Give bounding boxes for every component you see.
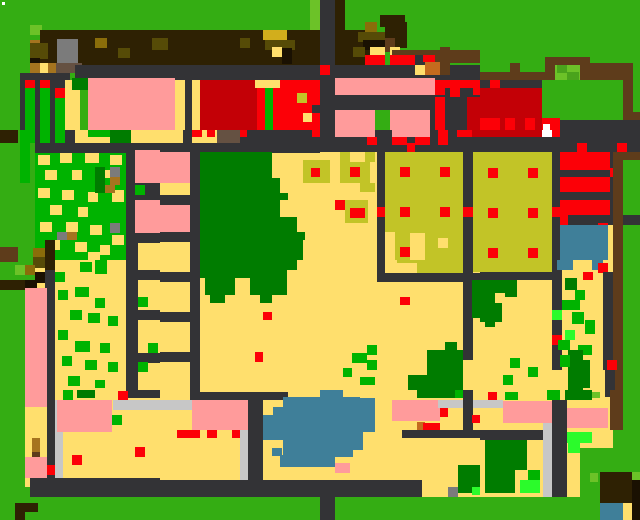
tree-green-tile [565,390,592,400]
room-pink-tile [25,288,47,407]
item-red-tile [311,168,320,177]
wall-tile [312,105,320,113]
gold-olive-tile [365,22,377,32]
stone-grey-tile [57,39,78,65]
roof-dark-tile [335,0,345,32]
water-tile [263,415,283,440]
lush-green-tile [552,310,562,320]
stone-path-tile [113,400,192,410]
item-red-tile [480,118,500,130]
room-pink-tile [192,400,248,430]
item-red-tile [528,208,538,218]
wood-brown-tile [590,63,623,80]
bush-green-tile [148,343,158,353]
item-red-tile [232,430,240,438]
wall-tile [377,273,480,282]
sand-floor-tile [112,235,124,245]
item-red-tile [450,88,460,97]
wall-tile [138,270,160,280]
sand-floor-tile [75,242,87,252]
item-red-tile [552,130,560,137]
dark-red-tile [200,80,257,130]
item-red-tile [560,152,610,170]
sand-floor-tile [66,222,78,232]
water-tile [557,260,573,270]
bush-green-tile [62,356,72,366]
item-red-tile [528,168,538,178]
tree-green-tile [200,240,303,260]
roof-dark-tile [0,130,18,143]
crop-field-tile [297,93,307,103]
dirt-tan-tile [110,177,120,185]
dark-red-tile [480,130,542,137]
wall-tile [160,312,190,322]
white-spot-tile [2,2,5,5]
bush-green-tile [80,262,92,272]
wall-tile [185,80,192,130]
dark-red-tile [480,88,542,118]
wall-tile [603,272,613,370]
bush-green-tile [367,345,377,355]
water-tile [352,398,375,432]
bush-green-tile [75,287,89,297]
item-red-tile [240,130,247,137]
roof-dark-tile [600,472,632,503]
bush-green-tile [58,330,68,340]
bush-green-tile [108,316,118,326]
room-pink-tile [25,457,47,478]
sand-floor-tile [255,80,280,88]
dirt-tan-tile [32,438,40,452]
stone-grey-tile [57,232,67,240]
item-red-tile [488,168,498,178]
tree-green-tile [417,390,455,398]
tree-green-tile [250,278,275,295]
item-red-tile [560,177,610,192]
wood-brown-tile [610,390,623,430]
stone-path-tile [543,423,552,497]
trunk-black-tile [282,48,292,64]
tree-green-tile [472,280,480,318]
wall-tile [192,392,288,400]
stone-grey-tile [448,487,458,497]
tree-green-tile [485,440,527,470]
room-pink-tile [392,400,440,421]
wood-brown-tile [613,152,623,390]
lush-green-tile [568,443,580,453]
lush-green-tile [567,432,592,443]
dark-red-tile [472,130,480,137]
item-red-tile [560,215,568,225]
bush-green-tile [352,353,367,363]
wall-tile [160,232,190,242]
bush-green-tile [100,343,110,353]
tree-green-tile [485,318,495,327]
wood-brown-tile [545,65,555,80]
item-red-tile [40,80,50,88]
item-red-tile [472,415,480,423]
wood-brown-tile [0,247,18,262]
item-red-tile [320,65,330,75]
lush-green-tile [520,480,540,493]
bush-green-tile [63,390,73,400]
sand-floor-tile [623,503,632,520]
wall-tile [480,430,543,440]
roof-dark-tile [0,280,25,290]
item-red-tile [560,200,610,215]
sand-floor-tile [90,225,102,235]
item-red-tile [118,391,128,400]
item-red-tile [440,408,448,417]
sand-floor-tile [88,252,100,260]
bush-green-tile [55,130,65,143]
tree-green-tile [200,152,272,178]
roof-dark-tile [15,512,25,520]
tree-green-tile [200,270,287,278]
tree-green-tile [77,390,95,398]
wall-tile [463,390,473,400]
roof-dark-tile [45,240,55,270]
tree-green-tile [95,167,105,193]
bush-green-tile [88,313,100,323]
gold-olive-tile [95,38,107,48]
item-red-tile [367,137,377,145]
item-red-tile [423,55,435,62]
dirt-tan-tile [105,185,115,193]
room-pink-tile [567,408,608,428]
item-red-tile [407,143,415,152]
sand-floor-tile [131,130,160,143]
light-grass-tile [592,392,600,398]
wall-tile [190,150,200,400]
sand-floor-tile [88,192,98,202]
water-tile [283,410,353,457]
sand-floor-tile [303,113,312,122]
item-red-tile [457,130,472,137]
wall-tile [160,480,422,497]
item-red-tile [255,352,263,362]
wall-tile [30,478,160,497]
room-pink-tile [335,463,350,473]
crop-field-tile [340,152,350,162]
item-red-tile [263,312,272,320]
bush-green-tile [75,341,90,352]
tree-green-tile [427,350,463,390]
wood-brown-tile [580,65,590,80]
tree-green-tile [565,278,577,290]
bush-green-tile [503,375,513,385]
bush-green-tile [505,392,518,400]
item-red-tile [488,248,498,258]
wall-tile [240,130,320,143]
light-grass-tile [632,472,640,480]
wall-tile [480,272,557,280]
sand-floor-tile [175,80,185,130]
sand-floor-tile [60,153,72,163]
tree-green-tile [200,178,280,193]
wall-tile [135,233,160,243]
room-pink-tile [335,110,375,130]
item-red-tile [400,297,410,305]
wall-tile [138,310,160,320]
sand-floor-tile [72,170,82,180]
room-pink-tile [160,205,190,232]
room-pink-tile [503,401,552,423]
wall-tile [552,400,567,497]
tree-green-tile [273,278,287,295]
light-grass-tile [590,473,598,482]
item-red-tile [135,447,145,457]
item-red-tile [192,130,202,137]
bush-green-tile [560,355,570,367]
item-red-tile [435,97,445,130]
water-tile [560,225,608,260]
sand-floor-tile [85,153,99,163]
bush-green-tile [585,320,595,334]
bush-green-tile [528,470,540,480]
room-pink-tile [135,200,160,233]
item-red-tile [528,248,538,258]
room-pink-tile [392,130,430,137]
water-tile [600,503,623,520]
item-red-tile [415,137,430,145]
sand-floor-tile [45,170,57,180]
item-red-tile [440,167,450,177]
sand-floor-tile [385,260,397,273]
lush-green-tile [472,487,480,495]
item-red-tile [72,455,82,465]
sand-floor-tile [38,155,50,165]
stone-grey-tile [110,223,120,233]
sand-floor-tile [573,260,592,270]
wall-tile [463,150,473,360]
wall-tile [128,390,160,398]
wall-tile [160,352,190,362]
sand-floor-tile [495,293,505,303]
sand-floor-tile [110,155,122,165]
item-red-tile [55,88,65,98]
bush-green-tile [95,260,107,274]
room-pink-tile [57,400,112,432]
wall-tile [160,272,190,282]
game-map-viewport[interactable] [0,0,640,520]
sand-floor-tile [415,65,425,75]
bush-green-tile [455,390,463,398]
bush-green-tile [20,130,30,183]
tree-green-tile [110,130,131,143]
item-red-tile [365,55,385,65]
dirt-tan-tile [30,63,40,73]
item-red-tile [607,360,617,370]
moss-olive-tile [240,38,250,48]
tree-green-tile [72,78,88,90]
item-red-tile [488,208,498,218]
wall-tile [320,480,335,520]
sand-floor-tile [438,238,448,248]
item-red-tile [488,392,497,400]
crop-field-tile [360,183,375,192]
item-red-tile [505,118,515,130]
bush-green-tile [95,298,105,308]
wood-brown-tile [440,47,450,75]
item-red-tile [438,130,448,145]
dirt-tan-tile [48,63,56,73]
water-tile [272,448,282,456]
gold-stock-tile [263,30,287,40]
sand-floor-tile [38,188,50,198]
moss-olive-tile [353,47,365,57]
item-red-tile [177,430,200,438]
sand-floor-tile [62,190,74,200]
wood-brown-tile [480,72,545,80]
bush-green-tile [58,290,68,300]
bush-green-tile [108,362,118,372]
moss-olive-tile [30,43,48,59]
bush-green-tile [528,367,538,377]
tree-green-tile [200,232,305,240]
sand-floor-tile [192,80,200,130]
stone-grey-tile [110,167,120,177]
item-red-tile [47,465,55,475]
item-red-tile [25,80,35,88]
bush-green-tile [112,415,122,425]
bush-green-tile [343,368,352,377]
mid-grass-tile [567,72,579,80]
crop-field-tile [365,152,375,162]
bush-green-tile [55,272,65,282]
bush-green-tile [547,390,560,400]
water-tile [273,407,283,417]
room-pink-tile [335,78,435,95]
tree-green-tile [485,470,515,493]
item-red-tile [335,200,345,210]
water-tile [345,430,363,450]
item-red-tile [350,167,360,177]
bush-green-tile [572,312,584,324]
bush-green-tile [88,130,110,137]
sand-floor-tile [385,232,395,260]
crop-field-tile [320,160,330,183]
item-red-tile [400,167,410,177]
room-pink-tile [160,152,190,183]
gold-olive-tile [25,265,35,275]
tree-green-tile [580,360,590,388]
item-red-tile [525,118,535,130]
item-red-tile [400,247,410,257]
bush-green-tile [360,377,375,385]
light-grass-tile [310,0,320,31]
bush-green-tile [95,380,105,388]
tree-green-tile [200,208,280,217]
taupe-crate-tile [217,130,240,143]
tree-green-tile [205,278,235,295]
roof-dark-tile [15,503,38,512]
crop-field-tile [473,152,552,272]
room-pink-tile [135,150,160,183]
item-red-tile [312,130,320,137]
bush-green-tile [510,358,520,368]
white-spot-tile [542,130,552,137]
tree-green-tile [210,295,225,303]
bush-green-tile [135,185,145,195]
wood-brown-tile [627,112,640,120]
wall-tile [160,195,190,205]
bush-green-tile [85,360,97,370]
room-pink-tile [88,78,175,130]
item-red-tile [583,272,593,280]
tree-green-tile [200,217,297,232]
item-red-tile [257,88,265,130]
tree-green-tile [200,193,288,200]
tree-green-tile [200,260,297,270]
sand-floor-tile [50,205,62,215]
item-red-tile [207,130,215,137]
sand-floor-tile [272,47,282,57]
item-red-tile [440,207,450,217]
mid-grass-tile [557,65,567,73]
bush-green-tile [558,340,570,350]
water-tile [280,455,335,467]
water-tile [283,397,360,410]
item-red-tile [280,80,320,88]
sand-floor-tile [410,233,425,260]
tree-green-tile [200,200,280,208]
sand-floor-tile [78,207,88,217]
bush-green-tile [265,88,273,130]
moss-olive-tile [118,48,130,58]
item-red-tile [577,143,587,152]
bush-green-tile [562,300,580,310]
bush-green-tile [70,310,82,320]
item-red-tile [390,55,415,65]
sand-floor-tile [100,245,110,255]
item-red-tile [463,207,473,217]
item-red-tile [400,207,410,217]
bush-green-tile [367,360,377,370]
wood-brown-tile [545,57,590,65]
item-red-tile [392,137,407,145]
room-pink-tile [390,110,430,130]
wall-tile [402,430,480,438]
wall-tile [65,130,75,143]
room-pink-tile [335,130,375,137]
bush-green-tile [575,290,585,300]
wood-brown-tile [510,63,520,72]
bush-green-tile [138,297,148,307]
lush-green-tile [565,330,575,340]
sand-floor-tile [397,263,417,273]
dark-red-tile [467,97,480,130]
trunk-black-tile [632,480,640,520]
bush-green-tile [68,376,80,386]
item-red-tile [350,208,365,218]
dirt-tan-tile [67,232,77,240]
screenshot-stage [0,0,640,520]
tree-green-tile [408,375,428,390]
bush-green-tile [40,130,50,143]
tree-green-tile [260,295,272,303]
bush-green-tile [138,362,148,372]
item-red-tile [207,430,217,438]
wall-tile [560,120,640,130]
moss-olive-tile [152,38,168,50]
sand-floor-tile [40,222,52,232]
crate-orange-tile [425,62,440,75]
